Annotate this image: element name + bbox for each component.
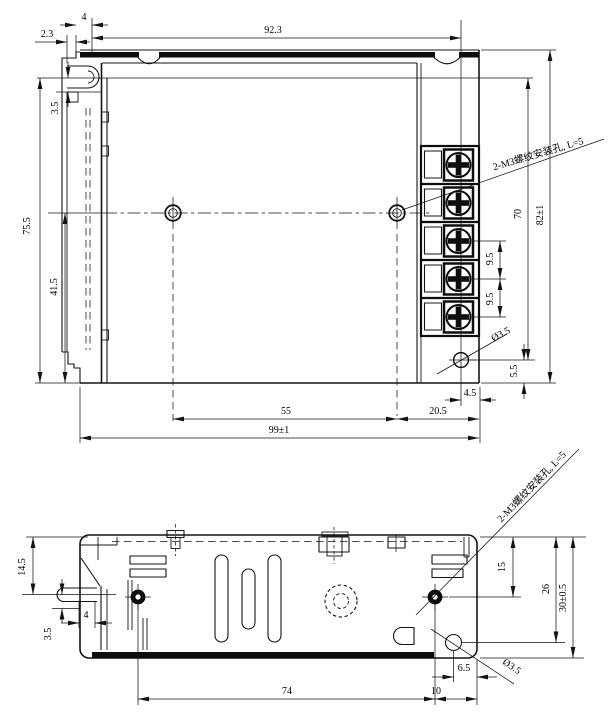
terminal-screw-4 bbox=[425, 264, 474, 295]
top-mounting-holes bbox=[48, 197, 476, 421]
top-tab-left bbox=[167, 524, 184, 556]
engineering-drawing: 4 2.3 92.3 3.5 75.5 41.5 82±1 70 bbox=[0, 0, 615, 725]
dim-top-20-5: 20.5 bbox=[429, 406, 447, 417]
top-edge-notch-right bbox=[434, 52, 460, 64]
dim-top-height-70: 70 bbox=[513, 209, 524, 219]
dim-top-5-5: 5.5 bbox=[509, 365, 520, 378]
engineering-drawing-page: 4 2.3 92.3 3.5 75.5 41.5 82±1 70 bbox=[0, 0, 615, 725]
vent-slot-left-2 bbox=[130, 569, 166, 577]
dim-top-55: 55 bbox=[281, 406, 291, 417]
terminal-screw-1 bbox=[425, 150, 474, 181]
note-side-m3-holes: 2-M3螺纹安装孔, L=5 bbox=[494, 448, 569, 525]
ground-pin bbox=[22, 588, 116, 602]
top-edge-notch-left bbox=[138, 52, 160, 64]
top-view: 4 2.3 92.3 3.5 75.5 41.5 82±1 70 bbox=[22, 12, 604, 443]
dim-top-height-82: 82±1 bbox=[535, 205, 546, 226]
terminal-screw-5 bbox=[425, 302, 474, 333]
switch-cutout bbox=[394, 628, 415, 645]
dim-side-30: 30±0.5 bbox=[558, 584, 569, 612]
dim-side-6-5: 6.5 bbox=[458, 663, 471, 674]
dim-pitch-9-5-b: 9.5 bbox=[485, 293, 496, 306]
vent-slot-right-2 bbox=[432, 569, 463, 578]
side-view-outline bbox=[22, 524, 477, 658]
top-view-dimensions: 4 2.3 92.3 3.5 75.5 41.5 82±1 70 bbox=[22, 12, 604, 443]
dim-pitch-9-5-a: 9.5 bbox=[485, 253, 496, 266]
terminal-screw-3 bbox=[425, 226, 474, 257]
dim-top-offset-2-3: 2.3 bbox=[41, 29, 54, 40]
dim-side-26: 26 bbox=[541, 584, 552, 594]
terminal-screw-2 bbox=[425, 188, 474, 219]
note-top-m3-holes: 2-M3螺纹安装孔, L=5 bbox=[491, 134, 585, 173]
dim-top-4-5: 4.5 bbox=[464, 388, 477, 399]
vent-louvres bbox=[215, 555, 281, 642]
dim-top-hook-3-5: 3.5 bbox=[50, 102, 61, 115]
dim-top-hole-41-5: 41.5 bbox=[49, 278, 60, 296]
terminal-block bbox=[421, 146, 479, 336]
dim-side-74: 74 bbox=[282, 686, 292, 697]
side-view-dimensions: 14.5 3.5 4 15 26 30±0.5 6.5 74 bbox=[17, 448, 586, 705]
dim-top-99: 99±1 bbox=[269, 425, 290, 436]
dim-side-10: 10 bbox=[431, 686, 441, 697]
dim-top-offset-4: 4 bbox=[82, 12, 87, 23]
dim-top-width-92-3: 92.3 bbox=[264, 25, 282, 36]
dim-top-height-75-5: 75.5 bbox=[22, 217, 33, 235]
potentiometer-hole bbox=[325, 585, 357, 617]
dim-side-3-5: 3.5 bbox=[43, 628, 54, 641]
dim-side-hole-dia-3-5: Ø3.5 bbox=[500, 657, 523, 677]
dim-side-14-5: 14.5 bbox=[17, 558, 28, 576]
top-tab-center bbox=[319, 527, 349, 564]
vent-slot-left-1 bbox=[130, 556, 166, 564]
dim-side-15: 15 bbox=[497, 562, 508, 572]
side-view: 14.5 3.5 4 15 26 30±0.5 6.5 74 bbox=[17, 448, 586, 705]
hanger-hook bbox=[67, 66, 99, 102]
vent-slot-right-1 bbox=[432, 555, 467, 564]
top-tab-right bbox=[388, 534, 405, 552]
dim-side-4: 4 bbox=[84, 610, 89, 621]
dim-top-hole-dia-3-5: Ø3.5 bbox=[490, 325, 513, 344]
side-corner-hole bbox=[446, 635, 462, 651]
